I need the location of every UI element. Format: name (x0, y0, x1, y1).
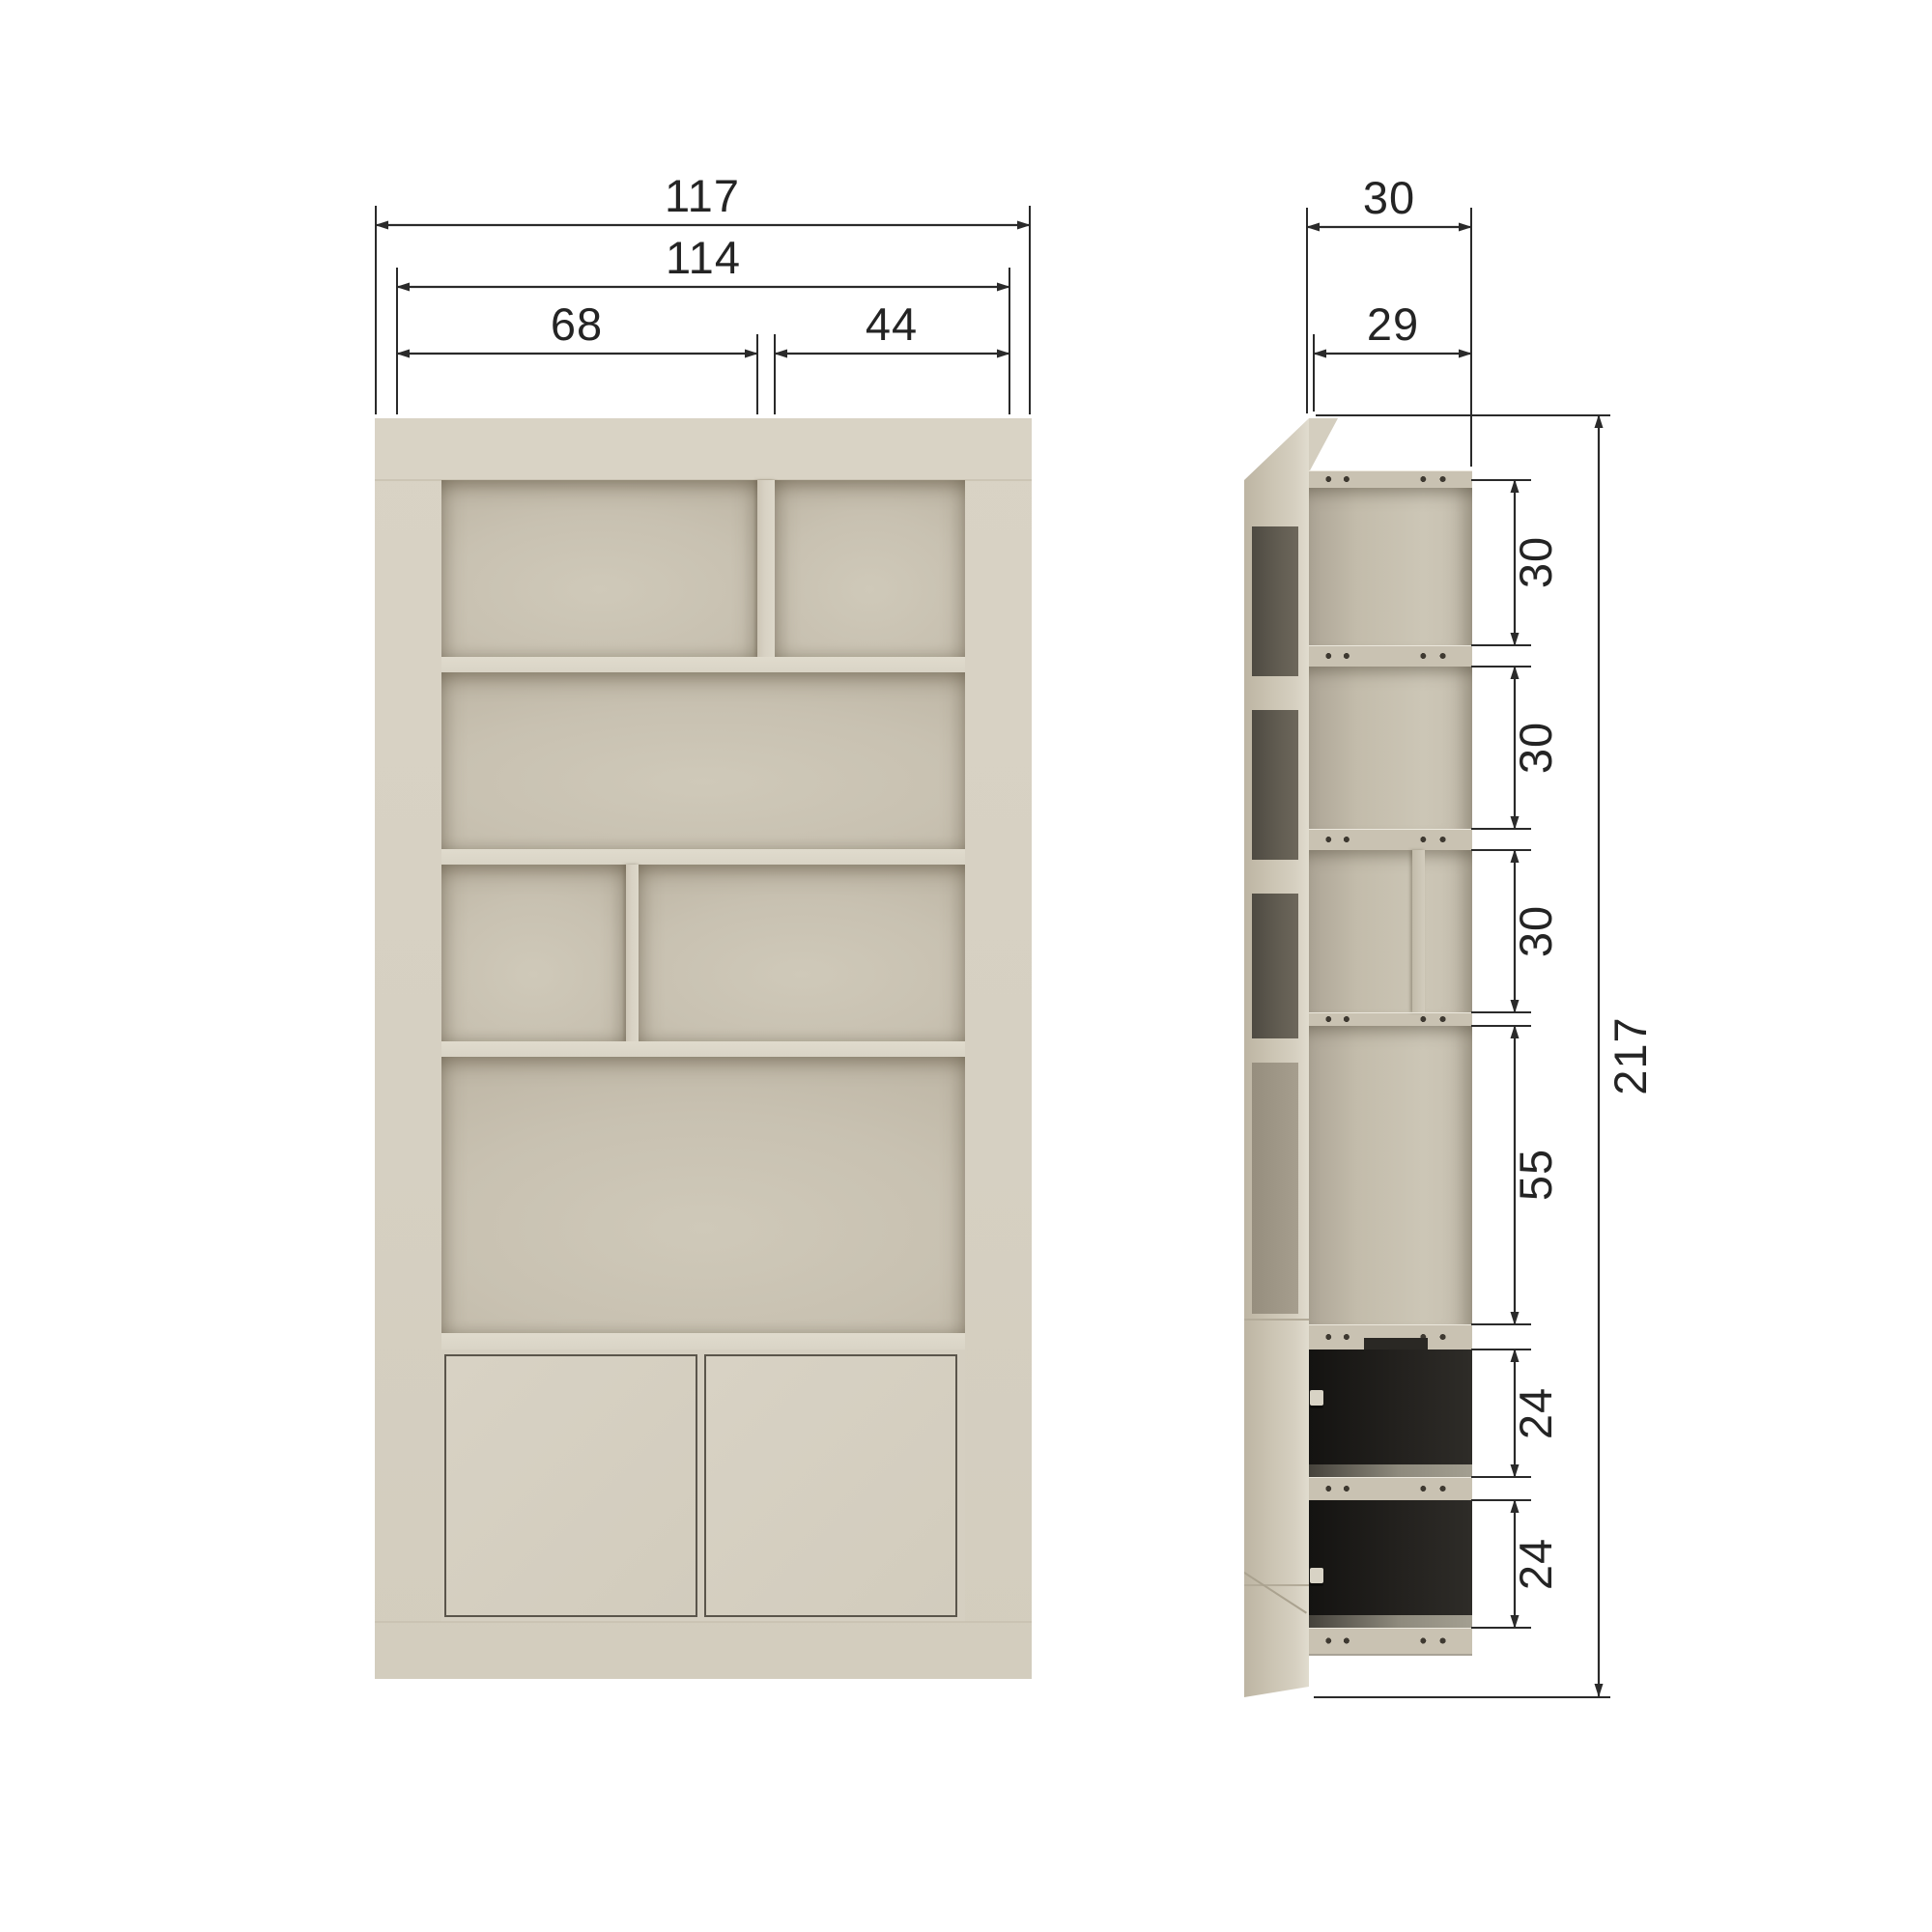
dim-label-comp-24b: 24 (1510, 1538, 1561, 1590)
diagram-canvas: 117 114 68 44 30 (0, 0, 1932, 1932)
dimension-overlay: 117 114 68 44 30 (0, 0, 1932, 1932)
dim-label-114: 114 (666, 232, 741, 283)
dim-label-30-depth: 30 (1363, 172, 1415, 223)
dim-label-comp-30c: 30 (1510, 905, 1561, 957)
dim-front-left-opening: 68 (397, 298, 757, 414)
dim-label-comp-30b: 30 (1510, 722, 1561, 774)
dim-side-compartments: 30 30 30 55 24 24 (1471, 480, 1561, 1628)
dim-label-44: 44 (866, 298, 918, 350)
dim-label-217: 217 (1605, 1016, 1656, 1094)
dim-label-comp-30a: 30 (1510, 536, 1561, 588)
dim-side-inner-depth: 29 (1314, 298, 1471, 412)
dim-side-overall-height: 217 (1314, 415, 1656, 1697)
dim-label-29: 29 (1367, 298, 1419, 350)
dim-front-overall-width: 117 (376, 170, 1030, 414)
dim-label-117: 117 (665, 170, 740, 221)
dim-label-68: 68 (551, 298, 603, 350)
dim-front-right-opening: 44 (775, 298, 1009, 414)
dim-label-comp-24a: 24 (1510, 1387, 1561, 1439)
dim-label-comp-55: 55 (1510, 1149, 1561, 1201)
